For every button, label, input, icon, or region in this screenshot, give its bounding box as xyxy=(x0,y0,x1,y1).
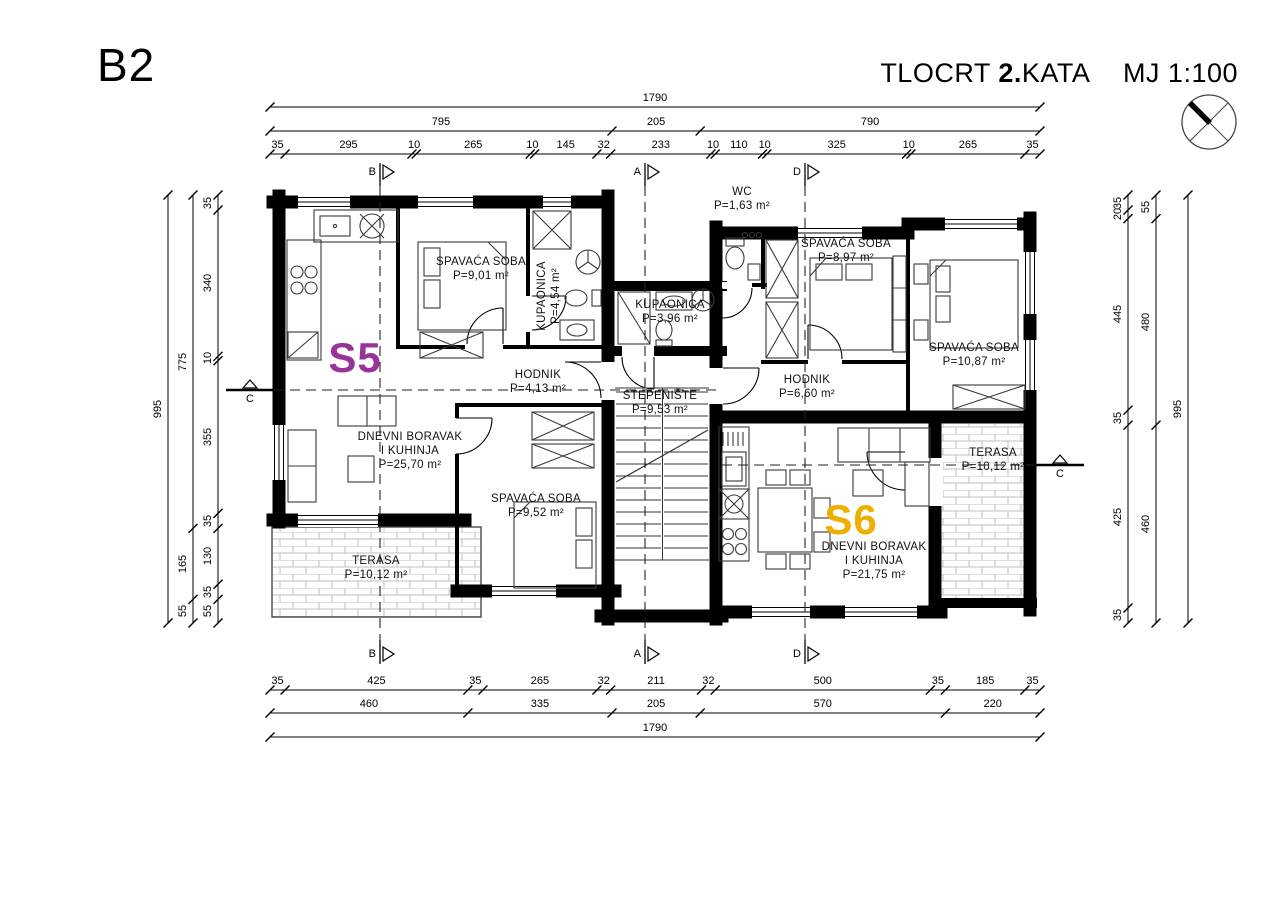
room-label-bedroom-s5-bottom: SPAVAĆA SOBAP=9,52 m² xyxy=(491,492,581,520)
dim-label: 165 xyxy=(177,555,189,573)
dim-label: 265 xyxy=(464,139,482,151)
dim-label: 265 xyxy=(531,675,549,687)
section-letter-b-top: B xyxy=(369,166,376,178)
dim-label: 55 xyxy=(1140,201,1152,213)
apartment-label-s5: S5 xyxy=(328,334,381,382)
dim-label: 775 xyxy=(177,353,189,371)
dim-label: 35 xyxy=(202,196,214,208)
dim-label: 445 xyxy=(1112,305,1124,323)
dim-label: 10 xyxy=(526,139,538,151)
dim-label: 35 xyxy=(1112,411,1124,423)
title-floor-rest: KATA xyxy=(1022,58,1089,88)
room-label-bedroom-s6-right: SPAVAĆA SOBAP=10,87 m² xyxy=(929,341,1019,369)
title-prefix: TLOCRT xyxy=(880,58,990,88)
room-label-terrace-s5: TERASAP=10,12 m² xyxy=(345,554,408,582)
dim-label: 1790 xyxy=(643,722,667,734)
dim-label: 480 xyxy=(1140,313,1152,331)
dim-label: 35 xyxy=(202,515,214,527)
section-letter-a-top: A xyxy=(634,166,641,178)
dim-label: 55 xyxy=(177,605,189,617)
section-letter-c-right: C xyxy=(1056,468,1064,480)
dim-label: 295 xyxy=(339,139,357,151)
dim-label: 233 xyxy=(652,139,670,151)
room-label-hall-s5: HODNIKP=4,13 m² xyxy=(510,368,566,396)
dim-label: 995 xyxy=(152,400,164,418)
dim-label: 335 xyxy=(531,698,549,710)
dim-label: 10 xyxy=(707,139,719,151)
section-letter-d-bottom: D xyxy=(793,648,801,660)
room-label-bedroom-s5-top: SPAVAĆA SOBAP=9,01 m² xyxy=(436,255,526,283)
dim-label: 32 xyxy=(598,675,610,687)
dim-label: 35 xyxy=(469,675,481,687)
dim-label: 205 xyxy=(647,698,665,710)
section-letter-b-bottom: B xyxy=(369,648,376,660)
floor-plan-sheet: B2 TLOCRT 2.KATA MJ 1:100 S5 S6 SPAVAĆA … xyxy=(0,0,1280,905)
dim-label: 35 xyxy=(1112,609,1124,621)
dim-label: 35 xyxy=(1112,196,1124,208)
dim-label: 795 xyxy=(432,116,450,128)
dim-label: 10 xyxy=(903,139,915,151)
room-label-terrace-s6: TERASAP=10,12 m² xyxy=(962,446,1025,474)
room-label-living-s6: DNEVNI BORAVAKI KUHINJAP=21,75 m² xyxy=(822,540,927,582)
room-label-hall-s6: HODNIKP=6,60 m² xyxy=(779,373,835,401)
room-label-living-s5: DNEVNI BORAVAKI KUHINJAP=25,70 m² xyxy=(358,430,463,472)
dim-label: 35 xyxy=(932,675,944,687)
dim-label: 185 xyxy=(976,675,994,687)
section-letter-d-top: D xyxy=(793,166,801,178)
dim-label: 570 xyxy=(814,698,832,710)
dim-label: 325 xyxy=(828,139,846,151)
dim-label: 995 xyxy=(1172,400,1184,418)
dim-label: 35 xyxy=(1026,675,1038,687)
dim-label: 32 xyxy=(598,139,610,151)
dim-label: 32 xyxy=(702,675,714,687)
dim-label: 205 xyxy=(647,116,665,128)
room-label-wc: WCP=1,63 m² xyxy=(714,185,770,213)
apartment-label-s6: S6 xyxy=(824,496,877,544)
dim-label: 211 xyxy=(647,675,665,687)
north-compass-icon xyxy=(1182,95,1236,149)
dim-label: 110 xyxy=(730,139,748,151)
dim-label: 10 xyxy=(408,139,420,151)
dim-label: 145 xyxy=(557,139,575,151)
dim-label: 500 xyxy=(814,675,832,687)
dim-label: 35 xyxy=(202,586,214,598)
dim-label: 460 xyxy=(360,698,378,710)
dim-label: 20 xyxy=(1112,208,1124,220)
sheet-code: B2 xyxy=(97,38,155,92)
dim-label: 10 xyxy=(202,352,214,364)
dim-label: 220 xyxy=(983,698,1001,710)
title-floor: 2. xyxy=(998,58,1022,88)
dim-label: 340 xyxy=(202,274,214,292)
dim-label: 35 xyxy=(271,139,283,151)
dim-label: 130 xyxy=(202,547,214,565)
drawing-title: TLOCRT 2.KATA MJ 1:100 xyxy=(880,58,1238,89)
dim-label: 355 xyxy=(202,428,214,446)
room-label-bedroom-s6-left: SPAVAĆA SOBAP=8,97 m² xyxy=(801,237,891,265)
dim-label: 55 xyxy=(202,605,214,617)
section-letter-a-bottom: A xyxy=(634,648,641,660)
dim-label: 425 xyxy=(367,675,385,687)
dim-label: 265 xyxy=(959,139,977,151)
dim-label: 790 xyxy=(861,116,879,128)
section-letter-c-left: C xyxy=(246,393,254,405)
room-label-bathroom-central: KUPAONICAP=3,96 m² xyxy=(635,298,705,326)
room-label-bathroom-s5: KUPAONICAP=4,54 m² xyxy=(535,261,563,331)
dim-label: 35 xyxy=(271,675,283,687)
dim-label: 35 xyxy=(1026,139,1038,151)
title-scale: MJ 1:100 xyxy=(1123,58,1238,88)
dim-label: 460 xyxy=(1140,515,1152,533)
room-label-staircase: STEPENIŠTEP=9,53 m² xyxy=(623,389,698,417)
dim-label: 425 xyxy=(1112,507,1124,525)
dim-label: 10 xyxy=(759,139,771,151)
floor-plan-drawing xyxy=(0,0,1280,905)
dim-label: 1790 xyxy=(643,92,667,104)
